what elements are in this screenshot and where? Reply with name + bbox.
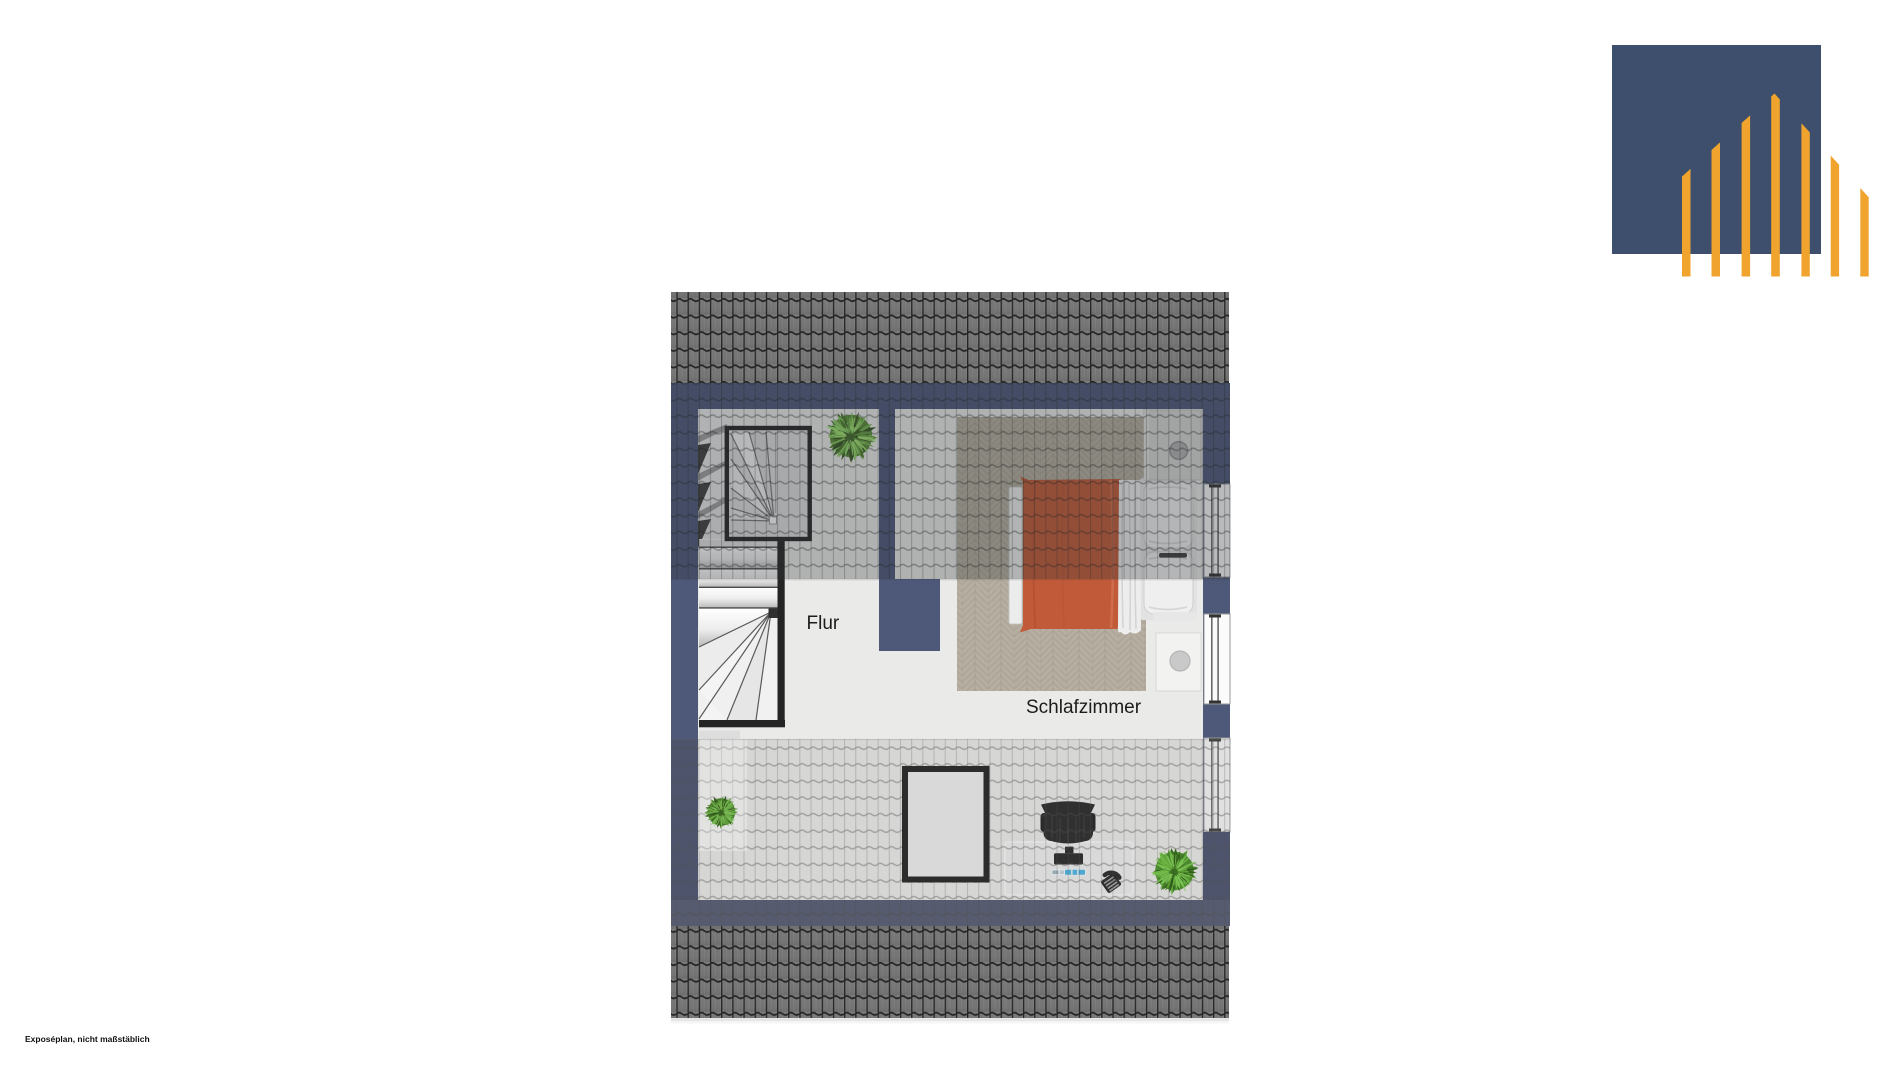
svg-text:Schlafzimmer: Schlafzimmer xyxy=(1026,697,1142,718)
svg-text:Exposéplan, nicht maßstäblich: Exposéplan, nicht maßstäblich xyxy=(25,1034,150,1044)
svg-text:Flur: Flur xyxy=(807,613,840,634)
